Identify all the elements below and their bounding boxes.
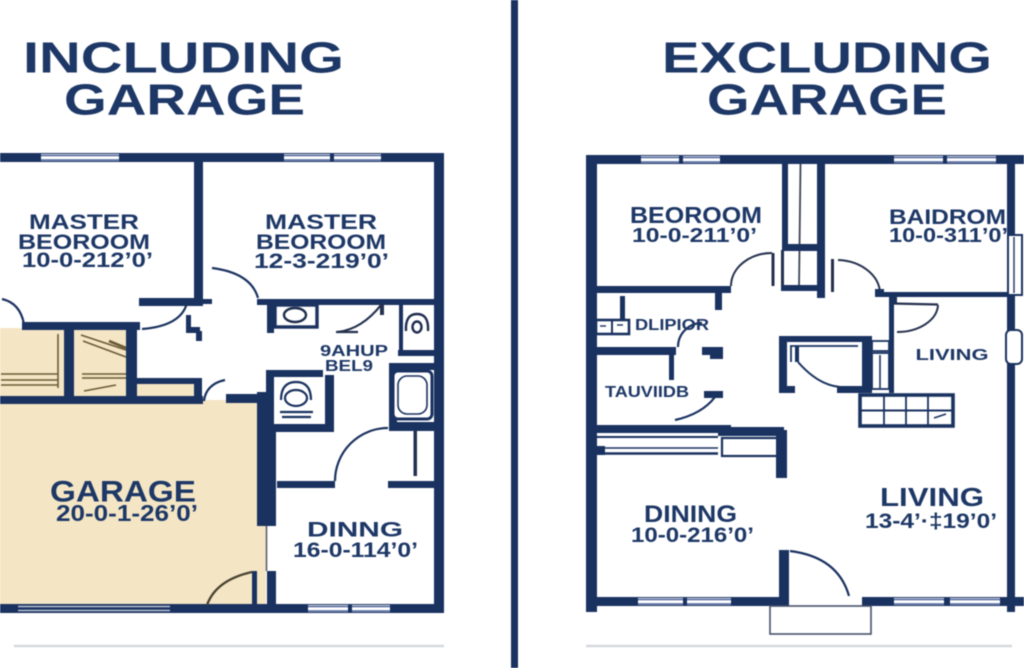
svg-text:BEL9: BEL9 bbox=[325, 358, 373, 375]
svg-text:10-0-216’0’: 10-0-216’0’ bbox=[631, 524, 754, 547]
svg-text:TAUVIIDB: TAUVIIDB bbox=[605, 384, 689, 401]
svg-text:DLIPIOR: DLIPIOR bbox=[635, 317, 710, 334]
svg-text:10-0-212’0’: 10-0-212’0’ bbox=[22, 249, 153, 272]
svg-text:LIVING: LIVING bbox=[916, 347, 989, 364]
svg-text:GARAGE: GARAGE bbox=[707, 76, 947, 125]
svg-text:12-3-219’0’: 12-3-219’0’ bbox=[254, 250, 389, 273]
svg-text:GARAGE: GARAGE bbox=[64, 76, 305, 125]
svg-text:20-0-1-26’0’: 20-0-1-26’0’ bbox=[56, 500, 198, 526]
svg-text:16-0-114’0’: 16-0-114’0’ bbox=[293, 539, 418, 562]
svg-text:10-0-311’0’: 10-0-311’0’ bbox=[889, 225, 1008, 247]
svg-text:10-0-211’0’: 10-0-211’0’ bbox=[632, 225, 757, 247]
svg-text:LIVING: LIVING bbox=[880, 482, 984, 512]
svg-text:13-4’·‡19’0’: 13-4’·‡19’0’ bbox=[865, 510, 997, 533]
